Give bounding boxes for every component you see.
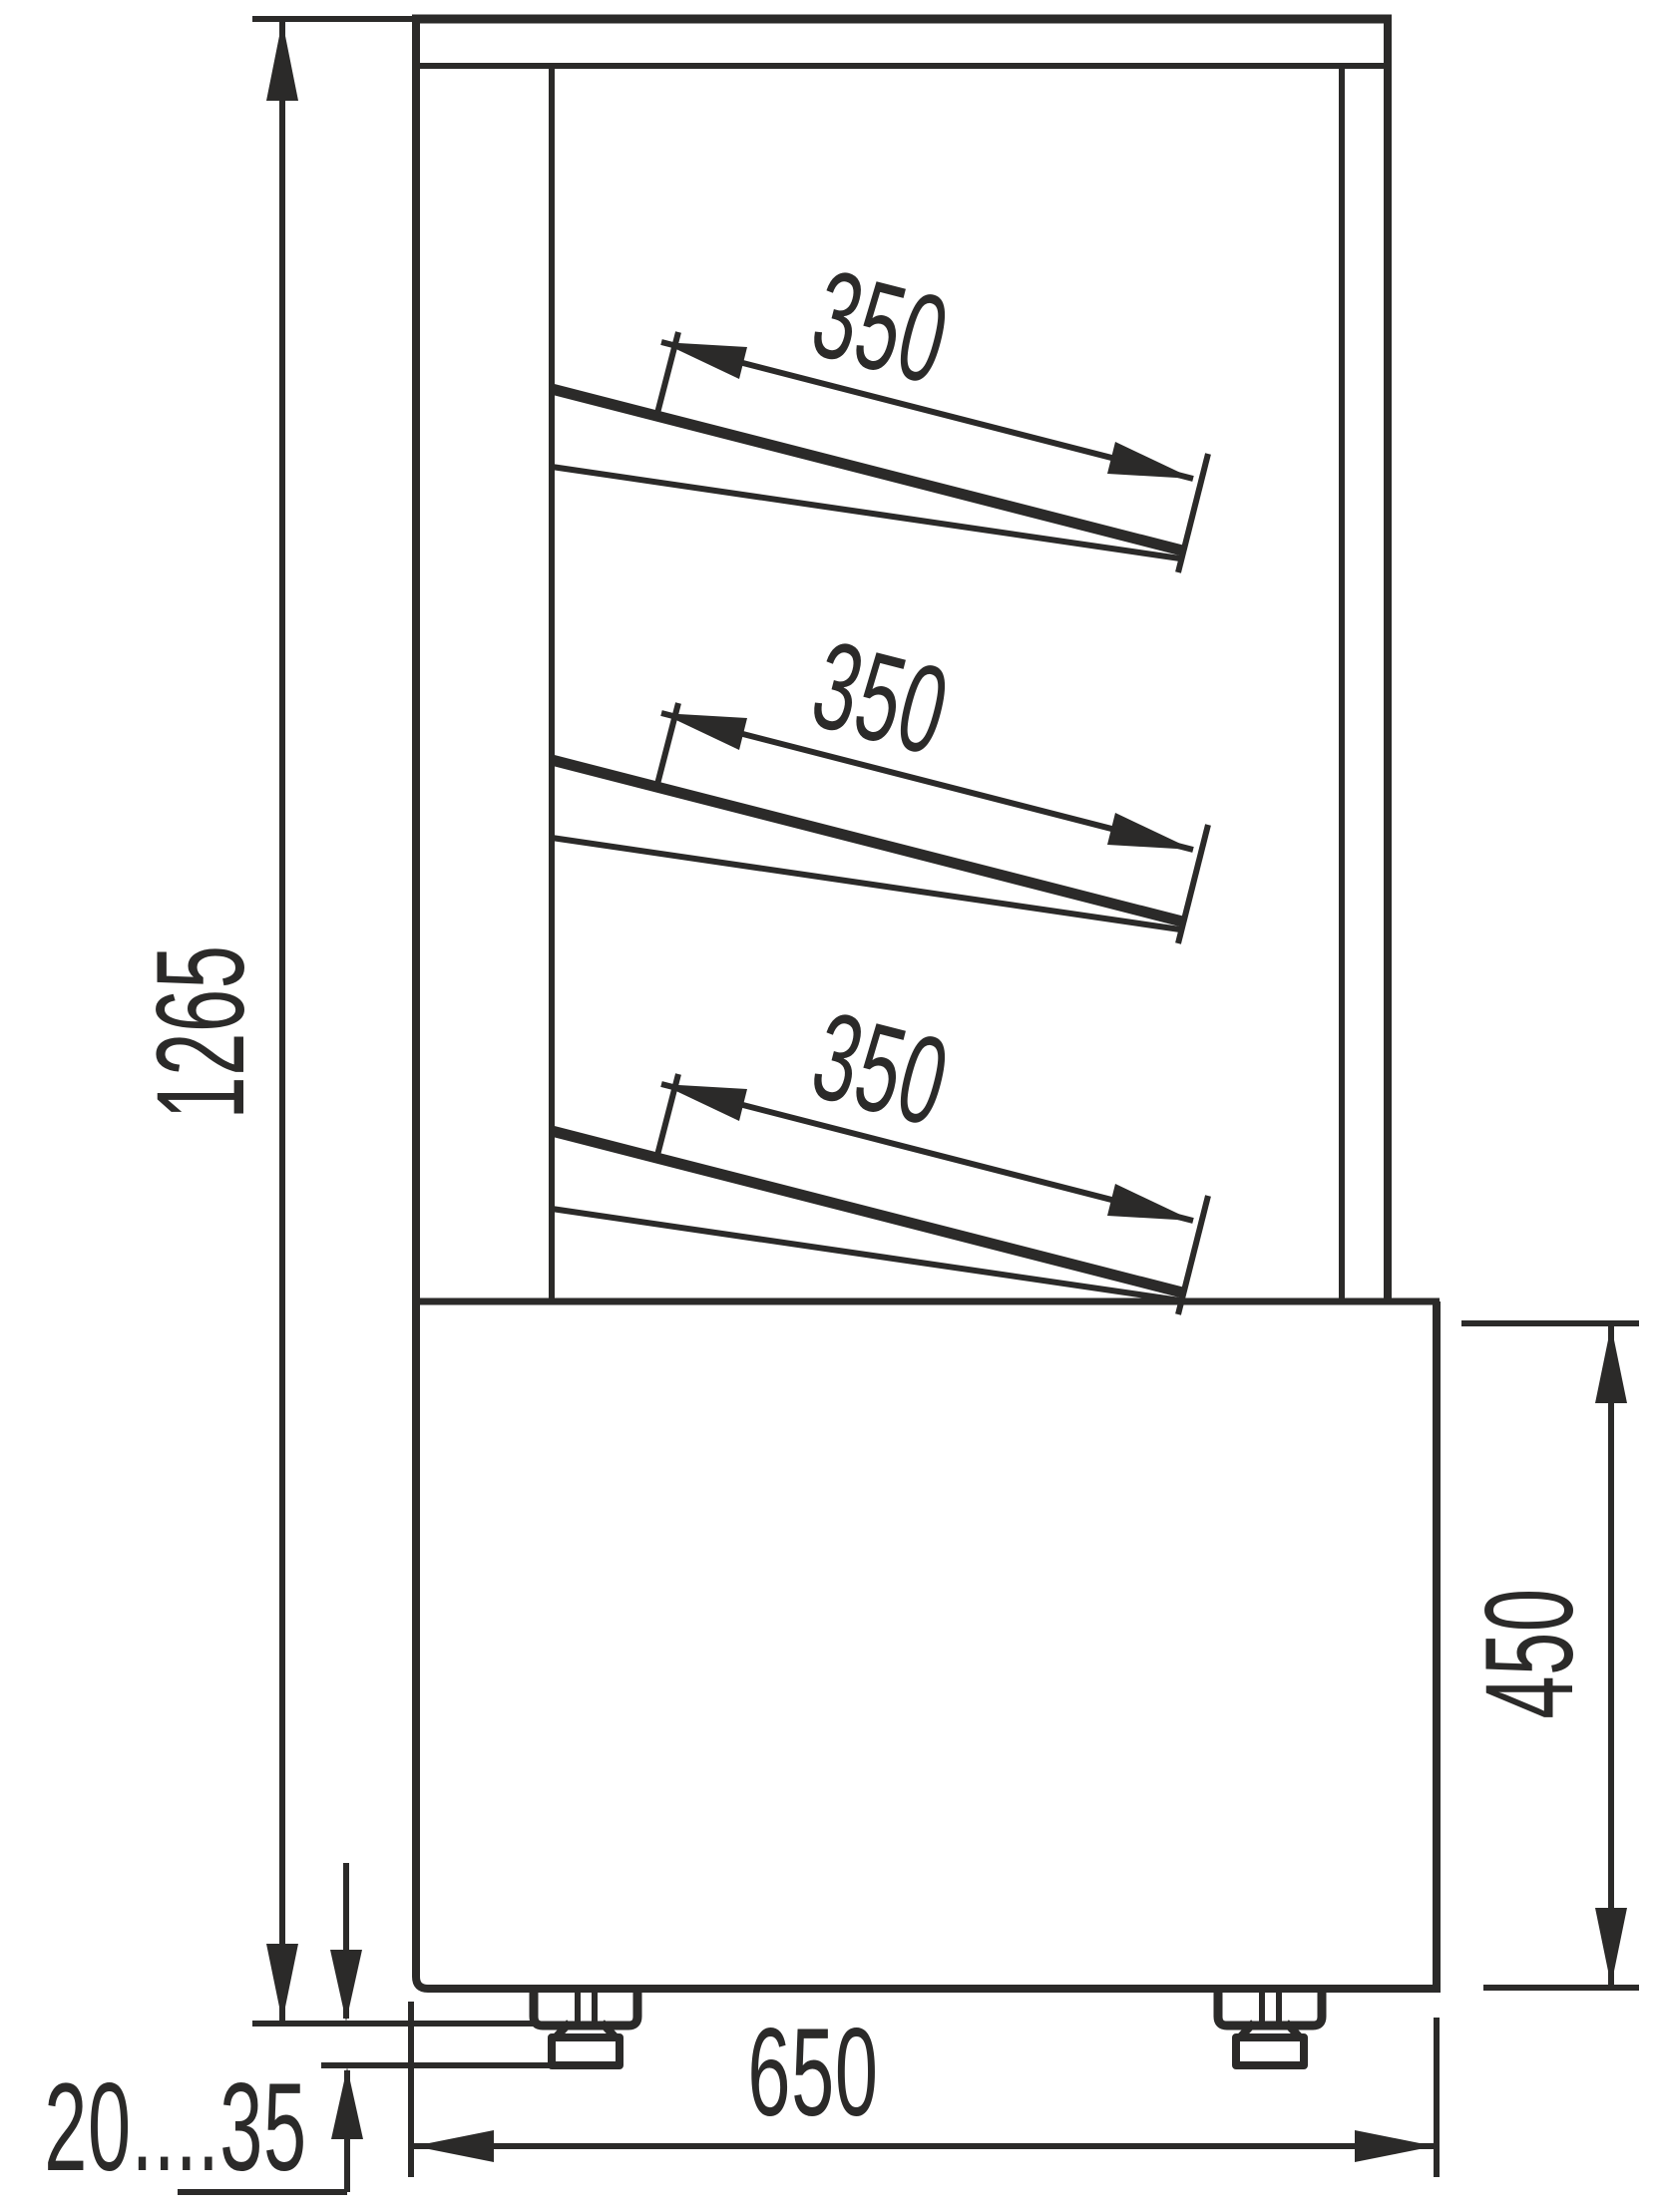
shelf-surface bbox=[552, 760, 1182, 922]
arrowhead-right bbox=[1107, 442, 1193, 479]
dim-extension-tick-right bbox=[1178, 825, 1208, 943]
shelf-2: 350 bbox=[552, 615, 1208, 943]
dim-extension-tick-right bbox=[1178, 454, 1208, 572]
arrowhead-left bbox=[661, 342, 747, 379]
shelf-3: 350 bbox=[552, 986, 1208, 1314]
arrowhead-down bbox=[266, 1944, 298, 2022]
arrowhead-right bbox=[1355, 2130, 1435, 2162]
arrowhead-up bbox=[1595, 1325, 1627, 1403]
dim-overall-height: 1265 bbox=[132, 19, 536, 2024]
arrowhead-up bbox=[266, 21, 298, 101]
dim-base-height: 450 bbox=[1460, 1323, 1639, 1988]
shelf-surface bbox=[552, 389, 1182, 551]
arrowhead-right bbox=[1107, 1184, 1193, 1221]
dim-label-base-height: 450 bbox=[1460, 1588, 1599, 1718]
shelf-bottom-line bbox=[552, 1209, 1180, 1300]
arrowhead-down bbox=[330, 1950, 362, 2022]
display-case-side-view-drawing: 350 350 350 1265 bbox=[0, 0, 1655, 2212]
arrowhead-down bbox=[1595, 1908, 1627, 1986]
technical-drawing-canvas: 350 350 350 1265 bbox=[0, 0, 1655, 2212]
arrowhead-right bbox=[1107, 813, 1193, 850]
foot-pad bbox=[552, 2037, 620, 2065]
foot-left bbox=[534, 1987, 637, 2065]
dim-label-overall-height: 1265 bbox=[132, 945, 270, 1120]
arrowhead-left bbox=[661, 1084, 747, 1121]
shelf-surface bbox=[552, 1131, 1182, 1292]
shelf-bottom-line bbox=[552, 467, 1180, 558]
arrowhead-left bbox=[414, 2130, 494, 2162]
foot-pad bbox=[1236, 2037, 1304, 2065]
dim-label-leg-adjustment: 20....35 bbox=[44, 2058, 306, 2197]
arrowhead-up bbox=[331, 2067, 363, 2139]
foot-right bbox=[1218, 1987, 1322, 2065]
shelf-bottom-line bbox=[552, 838, 1180, 929]
arrowhead-left bbox=[661, 713, 747, 750]
dim-label-overall-width: 650 bbox=[747, 2004, 878, 2142]
dim-extension-tick-right bbox=[1178, 1196, 1208, 1314]
shelf-1: 350 bbox=[552, 244, 1208, 572]
